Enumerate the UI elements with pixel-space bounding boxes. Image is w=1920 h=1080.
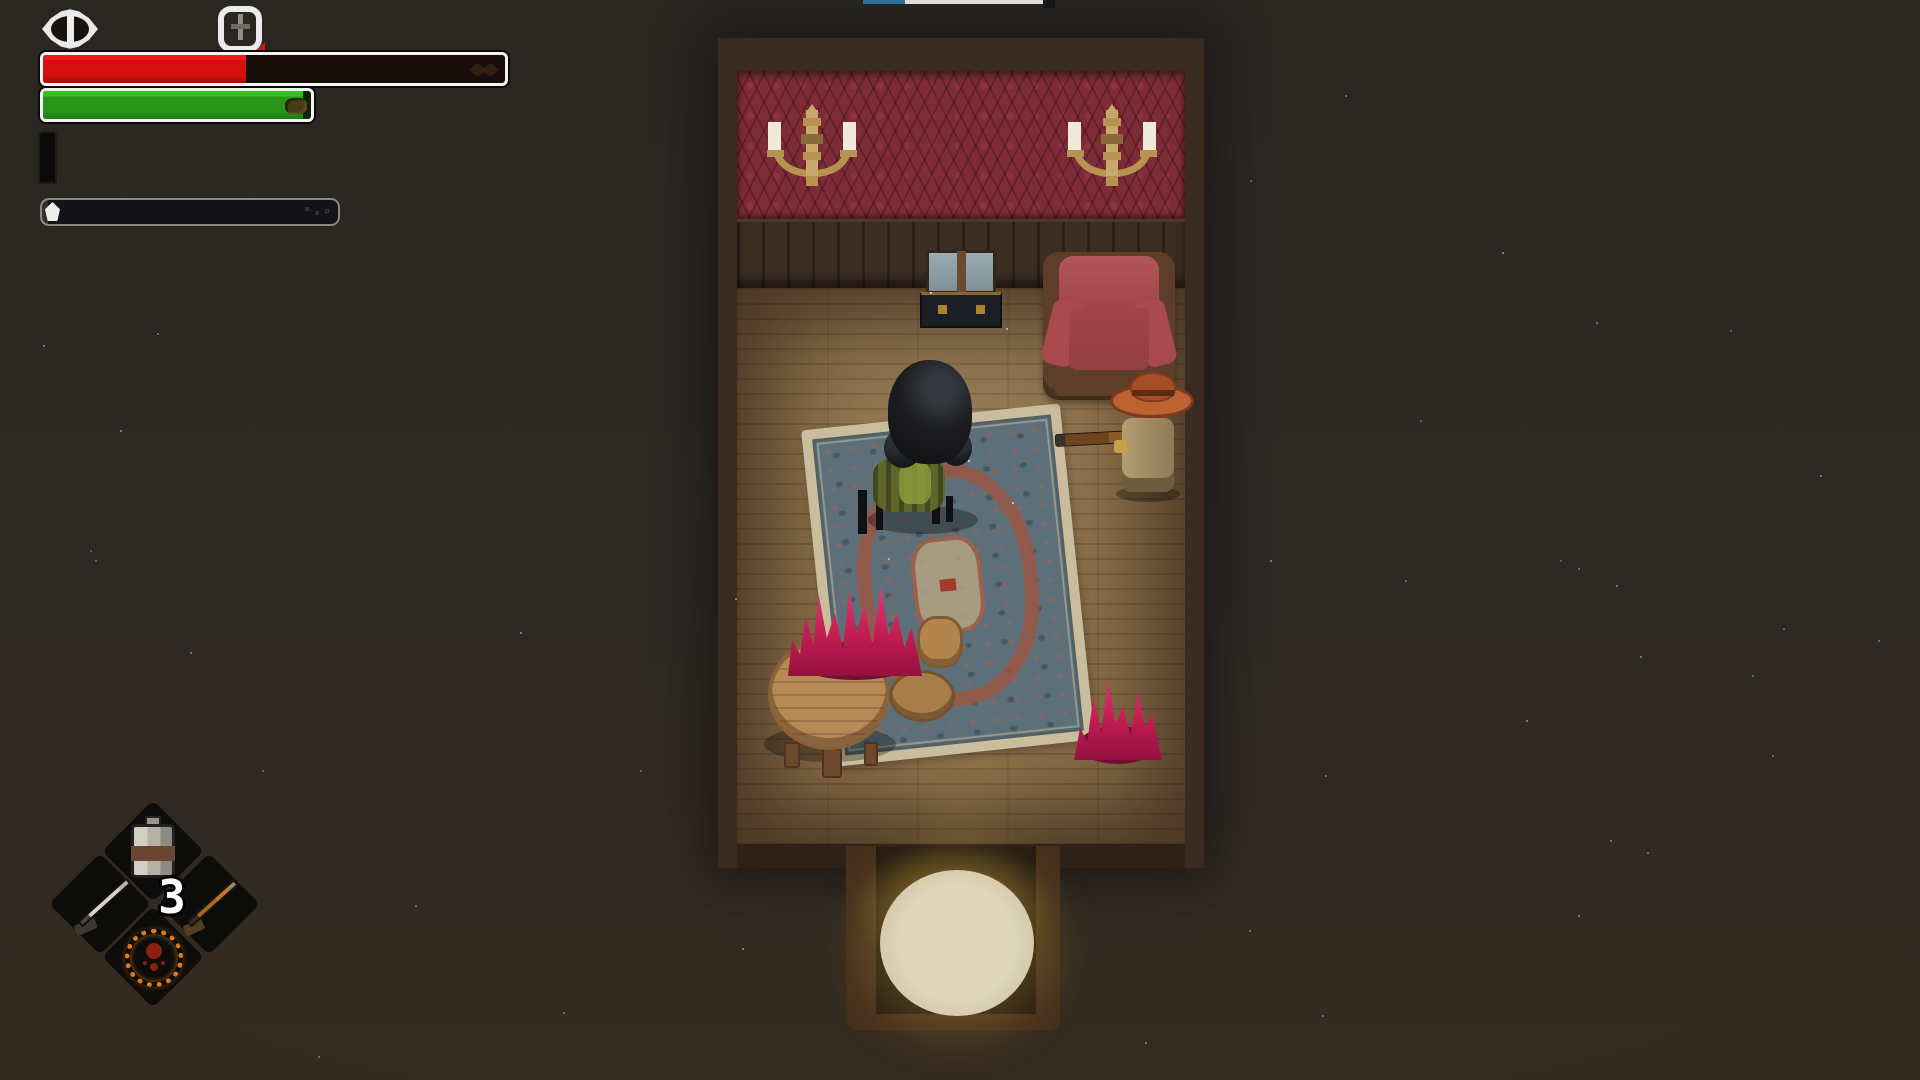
timer-icon	[216, 4, 266, 58]
health-bar	[40, 52, 508, 86]
cowboy-hat-crown	[1130, 372, 1176, 402]
health-bar-ornament-icon	[469, 63, 499, 77]
rifle-barrel	[77, 878, 131, 928]
top-strip-notch	[1043, 0, 1055, 8]
eye-icon	[42, 8, 98, 50]
eye-pupil	[67, 15, 74, 43]
armchair-seat	[1069, 308, 1149, 370]
table-leg	[864, 742, 878, 766]
reload-bar	[40, 198, 340, 226]
wall-sconce-icon	[762, 104, 862, 204]
mirror	[926, 250, 996, 294]
gold-clasp	[976, 305, 985, 314]
gold-clasp	[938, 305, 947, 314]
timer-hand	[231, 24, 250, 29]
cowboy-hat-band	[1132, 390, 1174, 396]
dresser-body	[920, 292, 1002, 328]
top-strip-blue	[863, 0, 905, 4]
pink-flame-large	[788, 586, 922, 676]
sigil-core	[146, 943, 162, 959]
stamina-bar	[40, 88, 314, 122]
doorway-light	[880, 870, 1034, 1016]
stamina-bar-fill	[43, 91, 303, 119]
item-count: 3	[148, 874, 196, 920]
mirror-dresser[interactable]	[920, 250, 1002, 328]
npc-hand	[1114, 440, 1127, 453]
wall-sconce-icon	[1062, 104, 1162, 204]
top-strip-white	[905, 0, 1046, 4]
floor-sparkles	[0, 0, 2, 2]
bullet-icon	[38, 131, 57, 184]
fire-sigil-icon	[125, 929, 183, 987]
stool	[917, 616, 963, 668]
game-viewport[interactable]: 3	[0, 0, 1920, 1080]
table-leg	[822, 748, 842, 778]
ink-drip	[946, 496, 953, 522]
health-bar-fill	[43, 55, 246, 83]
pink-flame-small	[1074, 670, 1162, 760]
reload-bar-dots	[326, 210, 328, 212]
canteen-band	[131, 846, 175, 861]
stamina-charm-icon	[285, 98, 307, 114]
flame-spikes	[1074, 670, 1162, 760]
cowboy-npc[interactable]	[1122, 418, 1174, 492]
flame-spikes	[788, 586, 922, 676]
ink-drip	[858, 490, 867, 534]
table-leg	[784, 742, 800, 768]
player-head	[888, 360, 972, 464]
room	[718, 38, 1204, 868]
stool	[889, 670, 955, 722]
